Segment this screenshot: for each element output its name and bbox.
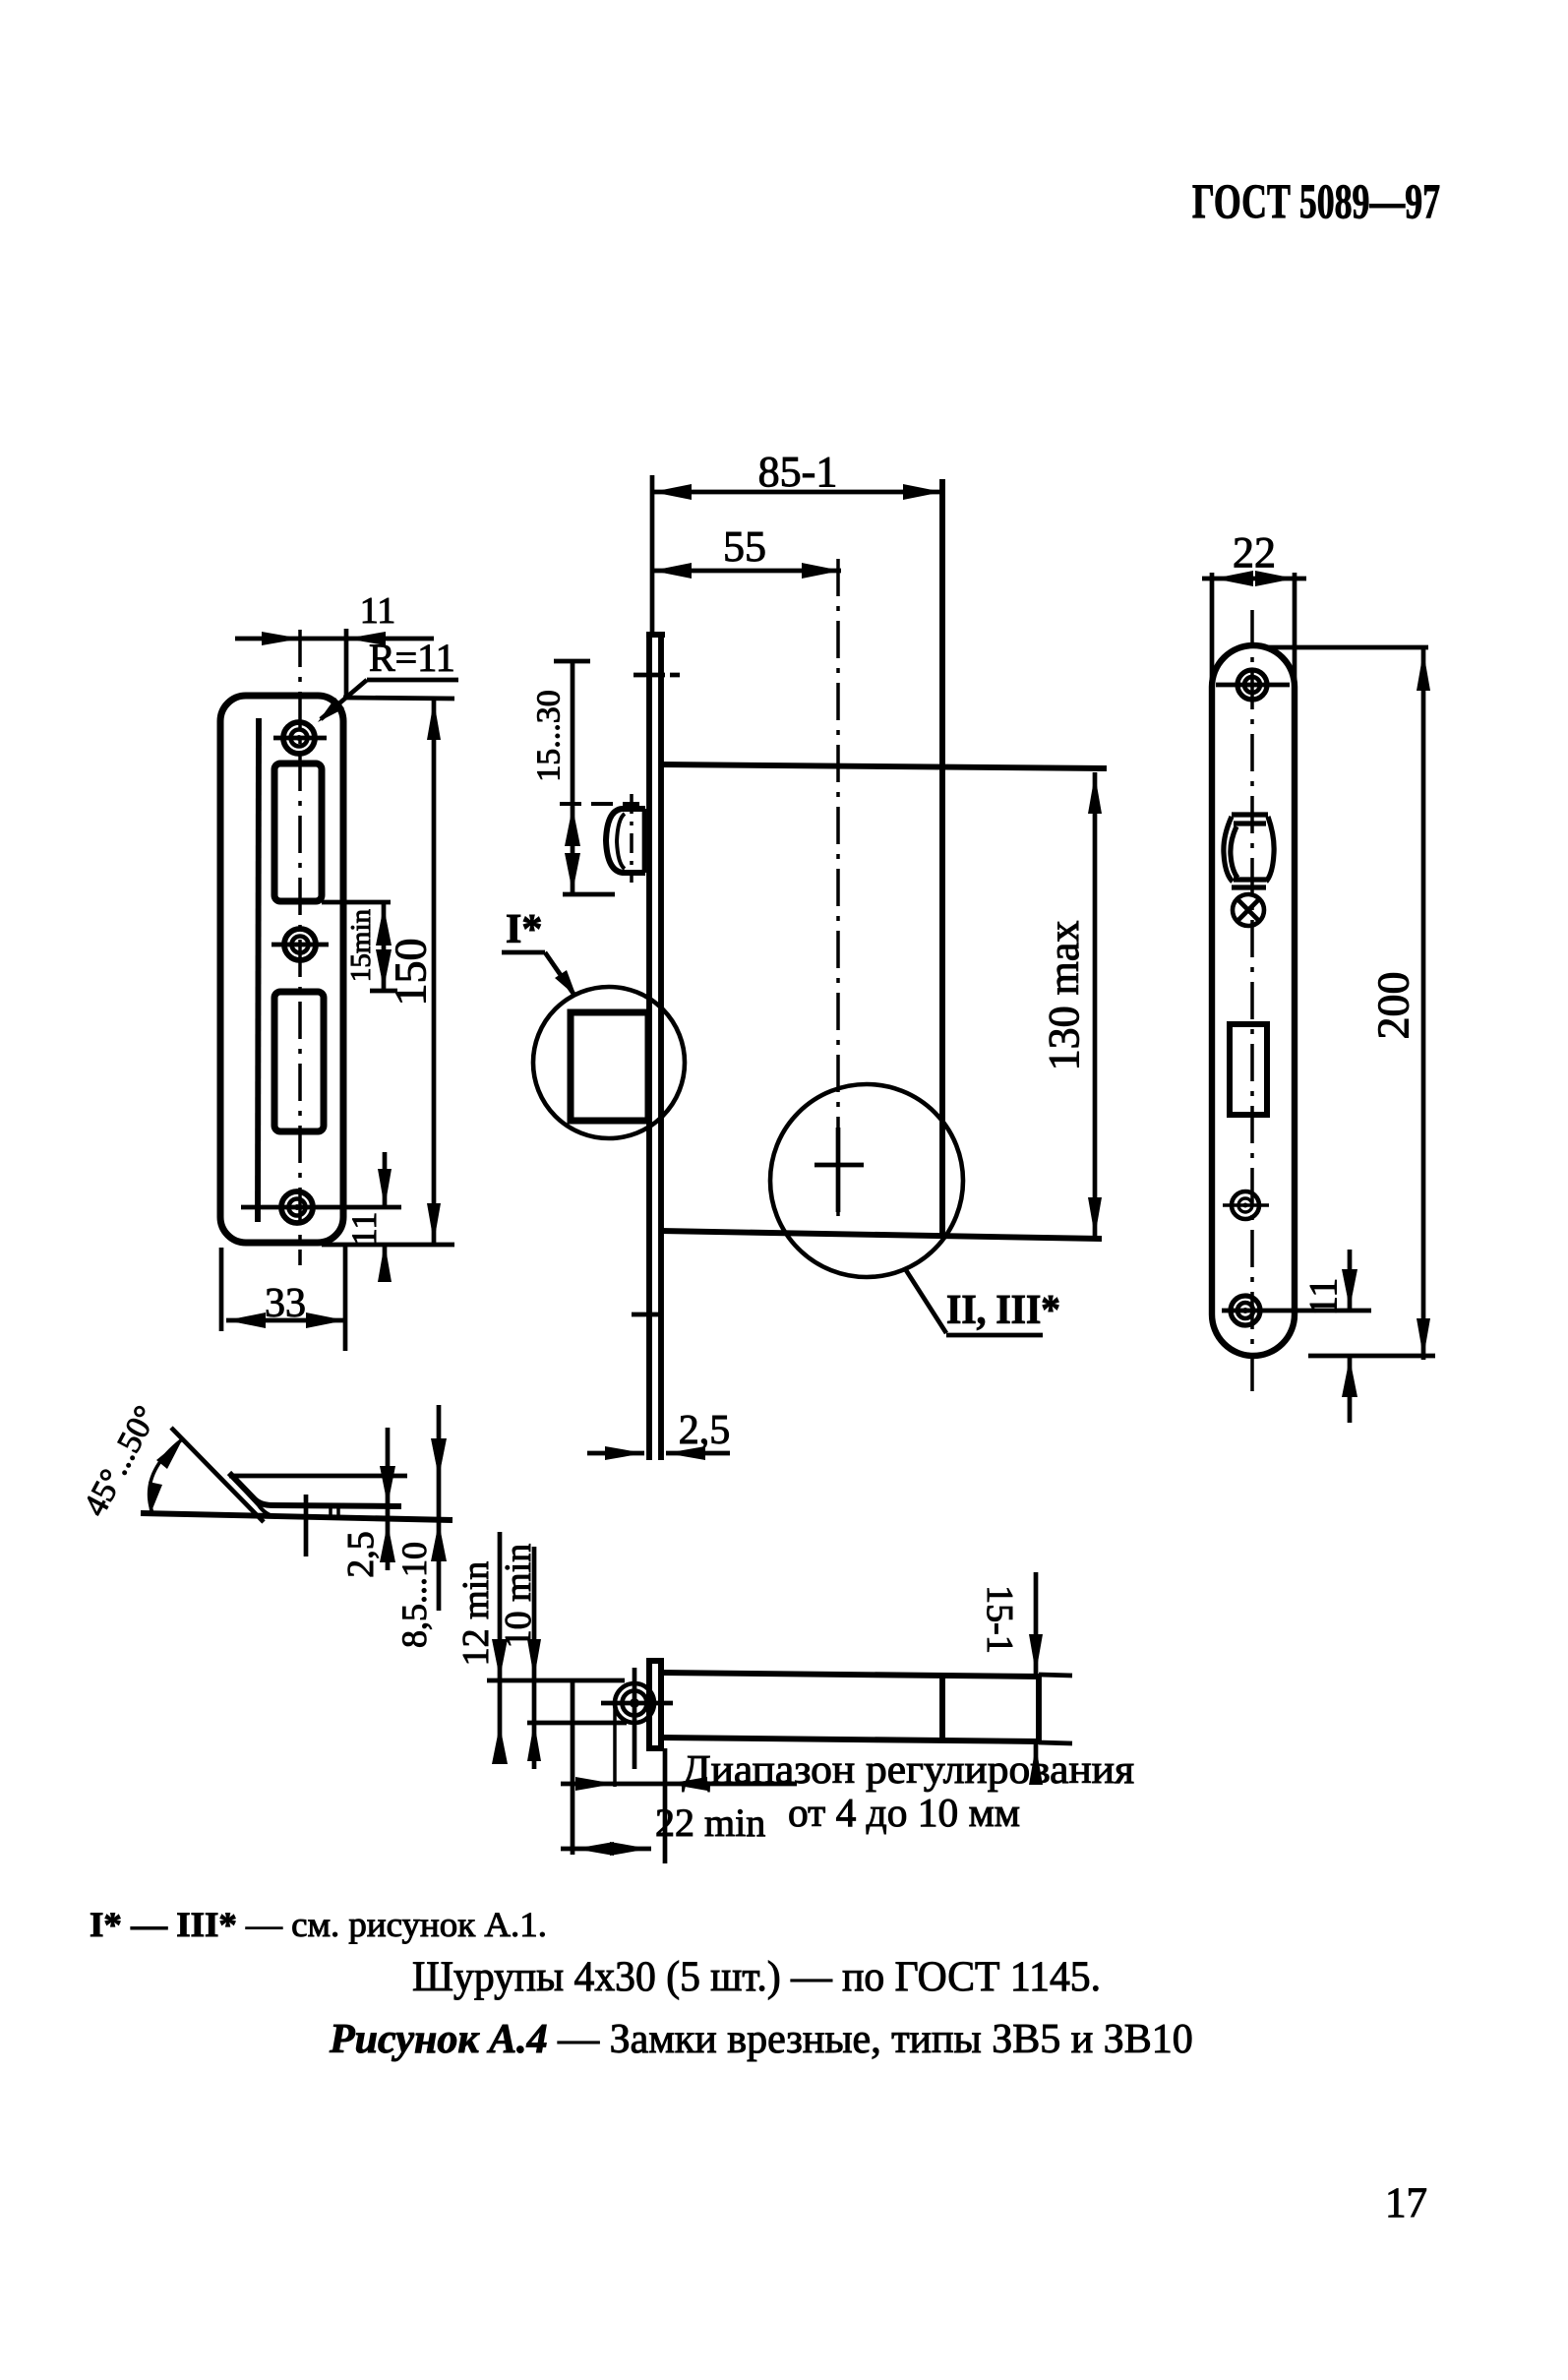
svg-text:ГОСТ 5089—97: ГОСТ 5089—97 [1192,173,1440,228]
svg-text:Диапазон регулирования: Диапазон регулирования [682,1746,1134,1792]
svg-text:II, III*: II, III* [946,1288,1060,1333]
svg-text:11: 11 [1301,1278,1346,1316]
svg-text:8,5...10: 8,5...10 [394,1542,434,1648]
svg-text:22 min: 22 min [655,1800,765,1845]
svg-text:2,5: 2,5 [340,1531,382,1578]
svg-text:от 4 до 10 мм: от 4 до 10 мм [788,1790,1020,1835]
svg-text:12 min: 12 min [455,1561,497,1667]
svg-text:33: 33 [265,1281,306,1326]
svg-text:R=11: R=11 [369,636,455,680]
svg-text:2,5: 2,5 [679,1408,731,1453]
svg-text:10 min: 10 min [498,1544,539,1649]
svg-text:55: 55 [723,522,766,571]
svg-text:15...30: 15...30 [531,690,568,782]
svg-text:17: 17 [1385,2180,1427,2227]
svg-text:85-1: 85-1 [758,448,838,496]
svg-text:11: 11 [344,1212,384,1247]
svg-text:Рисунок А.4 — Замки врезные, т: Рисунок А.4 — Замки врезные, типы ЗВ5 и … [329,2017,1193,2062]
svg-text:Шурупы 4х30 (5 шт.) — по ГОСТ: Шурупы 4х30 (5 шт.) — по ГОСТ 1145. [412,1954,1101,2000]
svg-text:150: 150 [386,939,436,1007]
svg-text:I* — III* — см. рисунок А.1.: I* — III* — см. рисунок А.1. [90,1905,547,1944]
svg-text:15min: 15min [345,908,377,982]
svg-text:I*: I* [506,907,542,952]
svg-text:11: 11 [360,590,396,632]
svg-text:130 max: 130 max [1040,921,1088,1071]
svg-text:22: 22 [1233,528,1276,577]
svg-text:15-1: 15-1 [979,1585,1020,1654]
svg-text:200: 200 [1368,972,1418,1040]
